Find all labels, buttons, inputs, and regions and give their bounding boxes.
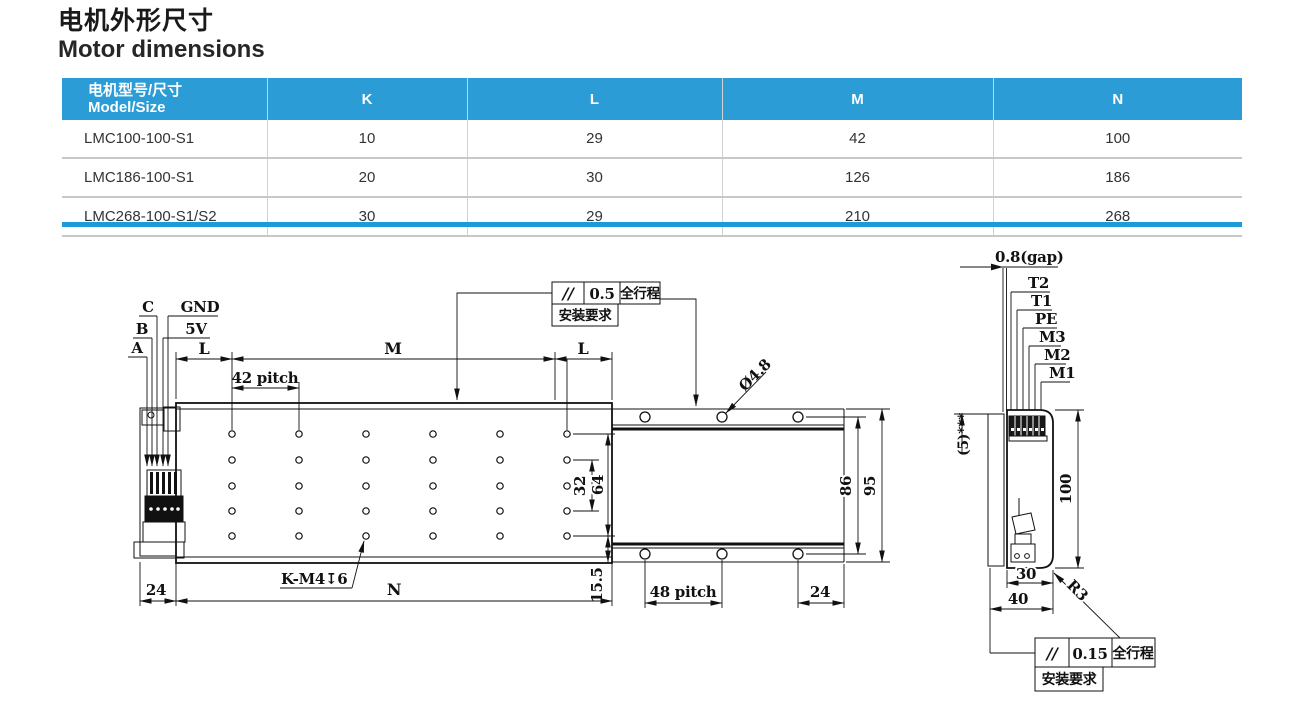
page-title-zh: 电机外形尺寸 — [58, 6, 265, 36]
header-col-k: K — [267, 78, 467, 120]
rail-height-dims: 86 95 — [806, 409, 890, 562]
dim-95: 95 — [861, 476, 879, 496]
dim-86: 86 — [837, 476, 855, 496]
cell-model: LMC268-100-S1/S2 — [62, 197, 267, 236]
side-wires: T2 T1 PE M3 M2 M1 — [1011, 274, 1075, 414]
parallelism-callout-bottom: // 0.15 全行程 安装要求 — [990, 638, 1155, 691]
rail-plate-section — [988, 414, 1004, 566]
wire-label-m2: M2 — [1044, 346, 1070, 364]
header-col-n: N — [993, 78, 1242, 120]
parallelism-callout-top: // 0.5 全行程 安装要求 — [457, 282, 696, 406]
rail-bottom-dims: 48 pitch 24 — [645, 560, 844, 608]
parallel-symbol: // — [1044, 644, 1060, 663]
dim-64: 64 — [589, 475, 607, 495]
dim-40: 40 — [1008, 590, 1028, 608]
dim-100: 100 — [1057, 474, 1075, 504]
tolerance-range: 全行程 — [619, 285, 660, 302]
cell-k: 30 — [267, 197, 467, 236]
rail-view: Ø4.8 48 pitch 24 86 95 — [612, 355, 890, 608]
dim-24-left: 24 — [146, 581, 166, 599]
wire-label-5v: 5V — [185, 320, 207, 338]
tolerance-value: 0.5 — [589, 285, 614, 303]
dim-n: N — [387, 580, 401, 599]
header-col-m: M — [722, 78, 993, 120]
cell-l: 29 — [467, 120, 722, 158]
wire-label-m1: M1 — [1049, 364, 1075, 382]
table-header: 电机型号/尺寸 Model/Size K L M N — [62, 78, 1242, 120]
dim-30: 30 — [1016, 565, 1036, 583]
dim-32: 32 — [571, 476, 589, 496]
table-accent-bar — [62, 222, 1242, 227]
rail-holes — [640, 412, 803, 559]
datasheet-page: 电机外形尺寸 Motor dimensions 电机型号/尺寸 Model/Si… — [0, 0, 1302, 702]
dim-l-right: L — [578, 339, 589, 358]
wire-label-a: A — [130, 339, 143, 357]
motor-dimensions-table: 电机型号/尺寸 Model/Size K L M N LMC100-100-S1… — [62, 78, 1242, 237]
wire-label-b: B — [136, 320, 148, 338]
forcer-body — [176, 403, 612, 563]
tolerance-range: 全行程 — [1111, 645, 1153, 662]
parallel-symbol: // — [560, 284, 576, 303]
cell-k: 10 — [267, 120, 467, 158]
hole-diameter-label: Ø4.8 — [735, 355, 775, 395]
dim-air-gap: 0.8(gap) — [995, 248, 1064, 266]
wire-label-pe: PE — [1035, 310, 1057, 328]
wire-label-gnd: GND — [181, 298, 220, 316]
dim-15-5: 15.5 — [588, 567, 606, 602]
note-5-stars: (5)*** — [956, 412, 972, 456]
cell-n: 100 — [993, 120, 1242, 158]
thread-note: K-M4↧6 — [281, 570, 347, 588]
header-model: 电机型号/尺寸 Model/Size — [62, 78, 267, 120]
front-view: A B C 5V GND L M L 42 pi — [128, 282, 696, 606]
header-model-zh: 电机型号/尺寸 — [88, 82, 266, 99]
dim-42-pitch: 42 pitch — [232, 369, 299, 387]
page-header: 电机外形尺寸 Motor dimensions — [58, 6, 265, 64]
radius-r3: R3 — [1063, 576, 1092, 605]
install-note: 安装要求 — [1042, 671, 1098, 688]
wire-label-c: C — [142, 298, 154, 316]
cell-m: 210 — [722, 197, 993, 236]
cell-model: LMC186-100-S1 — [62, 158, 267, 197]
dim-l-left: L — [199, 339, 210, 358]
install-note: 安装要求 — [559, 307, 613, 324]
cell-n: 268 — [993, 197, 1242, 236]
table-row: LMC100-100-S1 10 29 42 100 — [62, 120, 1242, 158]
dim-48-pitch: 48 pitch — [650, 583, 717, 601]
table-row: LMC186-100-S1 20 30 126 186 — [62, 158, 1242, 197]
wire-label-m3: M3 — [1039, 328, 1065, 346]
page-title-en: Motor dimensions — [58, 36, 265, 64]
cell-m: 42 — [722, 120, 993, 158]
wire-label-t2: T2 — [1028, 274, 1049, 292]
cell-model: LMC100-100-S1 — [62, 120, 267, 158]
side-view: 0.8(gap) T2 T1 PE — [954, 248, 1155, 691]
header-model-en: Model/Size — [88, 99, 266, 116]
dim-24-right: 24 — [810, 583, 830, 601]
cell-k: 20 — [267, 158, 467, 197]
cell-m: 126 — [722, 158, 993, 197]
tolerance-value: 0.15 — [1072, 645, 1107, 663]
wire-label-t1: T1 — [1031, 292, 1052, 310]
cell-n: 186 — [993, 158, 1242, 197]
cell-l: 29 — [467, 197, 722, 236]
cell-l: 30 — [467, 158, 722, 197]
dim-m: M — [384, 339, 401, 358]
table-row: LMC268-100-S1/S2 30 29 210 268 — [62, 197, 1242, 236]
header-col-l: L — [467, 78, 722, 120]
